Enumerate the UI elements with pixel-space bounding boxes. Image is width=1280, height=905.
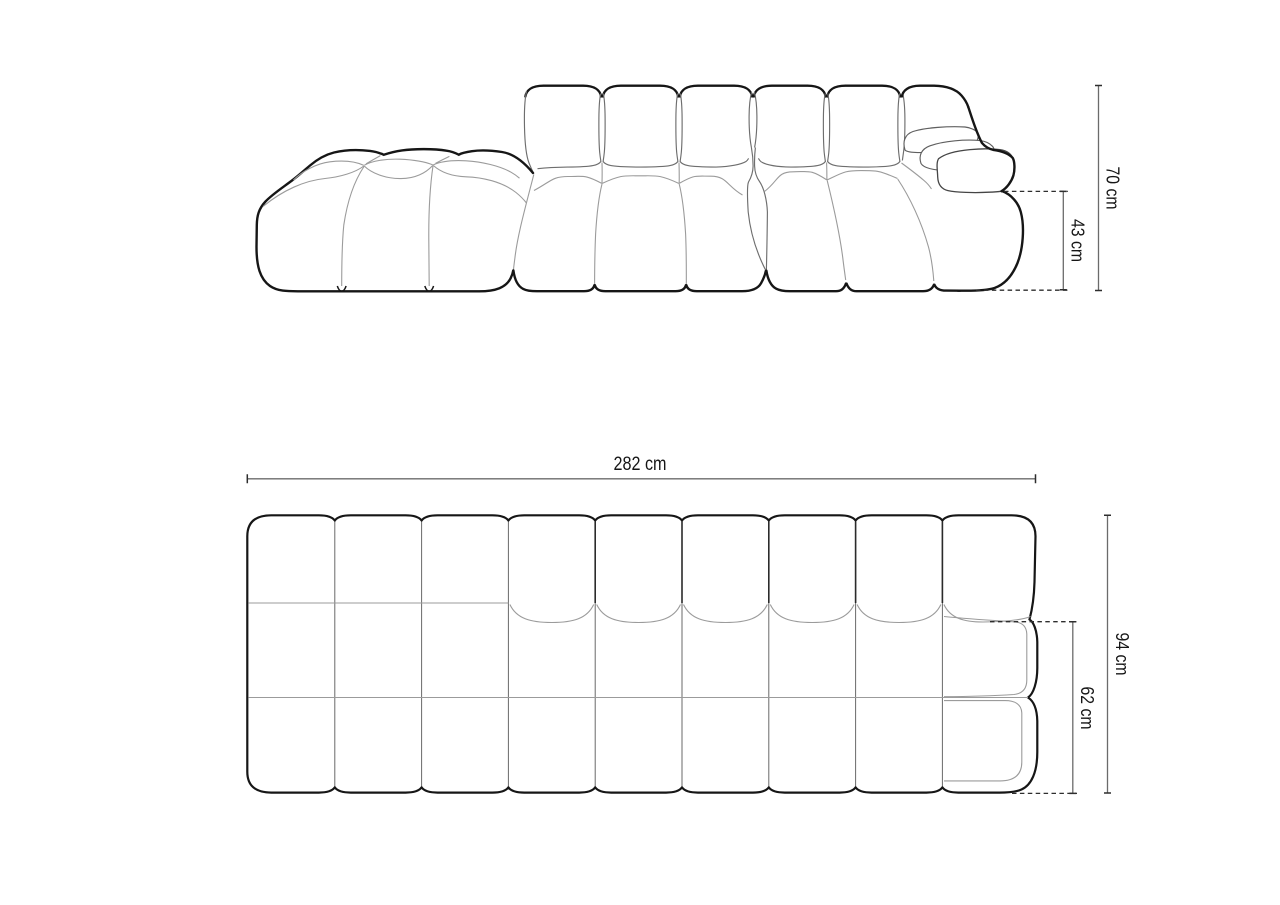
- svg-text:43 cm: 43 cm: [1068, 219, 1089, 262]
- svg-text:70 cm: 70 cm: [1103, 167, 1124, 210]
- svg-text:282 cm: 282 cm: [614, 454, 667, 475]
- svg-text:62 cm: 62 cm: [1077, 687, 1098, 730]
- svg-text:94 cm: 94 cm: [1112, 633, 1133, 676]
